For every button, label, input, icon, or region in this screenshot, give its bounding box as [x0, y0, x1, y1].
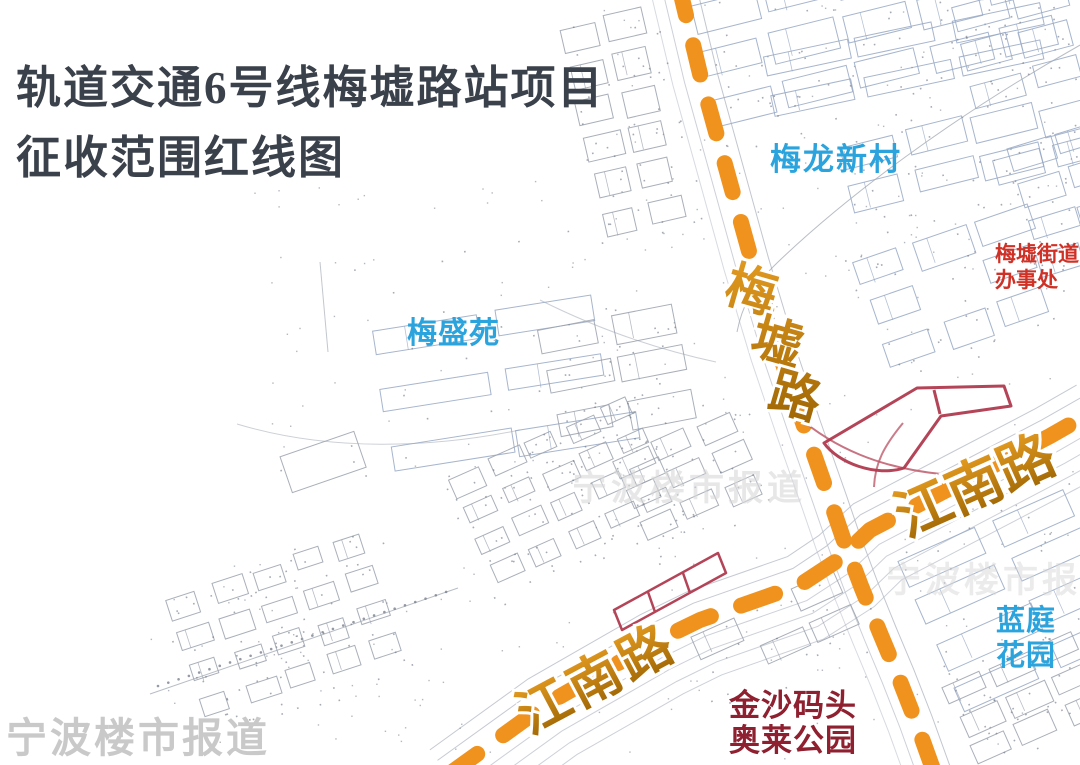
label-meisheng-yuan: 梅盛苑 [407, 308, 500, 352]
label-jinsha-line2: 奥莱公园 [729, 723, 857, 758]
watermark-center-1: 宁波楼市报道 [572, 460, 806, 511]
label-lanting-huayuan: 蓝庭 花园 [996, 604, 1056, 674]
page-title-line1: 轨道交通6号线梅墟路站项目 [16, 54, 605, 124]
road-label-jiangnan-lower: 江南路 [507, 613, 686, 745]
boundary-curve-inner [874, 423, 903, 487]
watermark-bottom-left: 宁波楼市报道 [6, 704, 270, 764]
road-label-meixu: 梅墟路 [719, 257, 829, 432]
label-meilong-xincun: 梅龙新村 [770, 134, 902, 179]
page-title: 轨道交通6号线梅墟路站项目 征收范围红线图 [16, 54, 605, 194]
label-meixu-jiedao: 梅墟街道 办事处 [995, 242, 1079, 295]
label-meixu-jiedao-line2: 办事处 [995, 268, 1079, 294]
watermark-center-2: 宁波楼市报道 [886, 552, 1080, 603]
label-jinsha-aolai: 金沙码头 奥莱公园 [729, 688, 857, 758]
label-lanting-line1: 蓝庭 [996, 604, 1056, 639]
label-meixu-jiedao-line1: 梅墟街道 [995, 242, 1079, 268]
label-jinsha-line1: 金沙码头 [729, 688, 857, 723]
label-lanting-line2: 花园 [996, 639, 1056, 674]
page-title-line2: 征收范围红线图 [16, 124, 605, 194]
redline-map-page: 梅墟路 江南路 江南路 轨道交通6号线梅墟路站项目 征收范围红线图 梅龙新村 梅… [0, 0, 1080, 765]
